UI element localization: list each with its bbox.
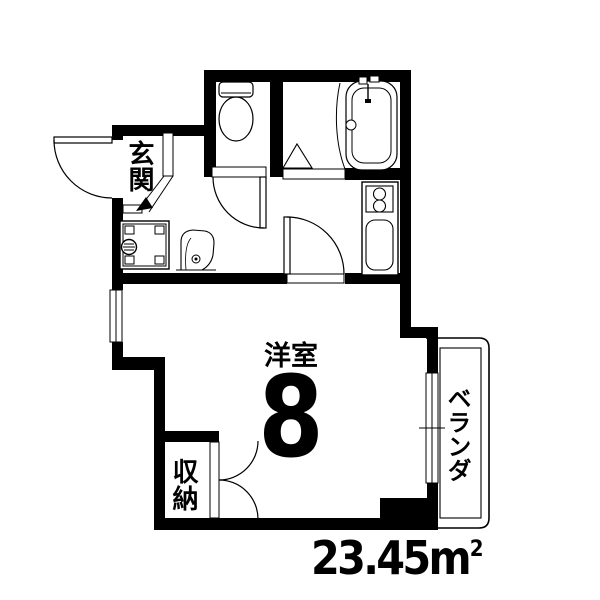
floor-area-label: 23.45m2 [311, 535, 484, 581]
kitchen-sink-icon [366, 220, 393, 270]
toilet-door-swing-icon [213, 177, 266, 228]
bath-area-divider [336, 83, 345, 169]
entrance-door-swing-icon [54, 137, 112, 198]
veranda-label: ベランダ [445, 386, 469, 482]
washing-machine-pan-icon [120, 221, 169, 269]
toilet-threshold [212, 167, 266, 177]
faucet-valve-icon [122, 240, 137, 255]
bath-threshold [283, 169, 345, 179]
bath-folding-door-icon [283, 144, 312, 168]
floor-area-value: 23.45 [311, 531, 428, 585]
main-room-threshold [287, 274, 344, 283]
storage-label: 収納 [170, 458, 196, 512]
veranda-window-icon [419, 373, 445, 483]
main-room-size-label: 8 [255, 362, 327, 474]
floor-plan-drawing [0, 0, 600, 600]
floor-plan: 玄関 洋室 8 収納 ベランダ 23.45m2 [0, 0, 600, 600]
toilet-icon [219, 82, 253, 141]
entry-arrow-icon [136, 197, 153, 211]
kitchen-unit [362, 182, 398, 275]
storage-door-panel [210, 442, 219, 518]
main-room-door-swing-icon [284, 217, 344, 274]
floor-area-unit: m [428, 531, 468, 585]
floor-area-unit-sup: 2 [470, 537, 484, 562]
entrance-label: 玄関 [126, 140, 152, 192]
left-window-icon [110, 290, 122, 342]
storage-double-door-swing-icon [219, 441, 258, 519]
stove-burners-icon [366, 186, 393, 212]
bathtub-icon [336, 76, 397, 170]
wash-basin-icon [176, 230, 216, 270]
